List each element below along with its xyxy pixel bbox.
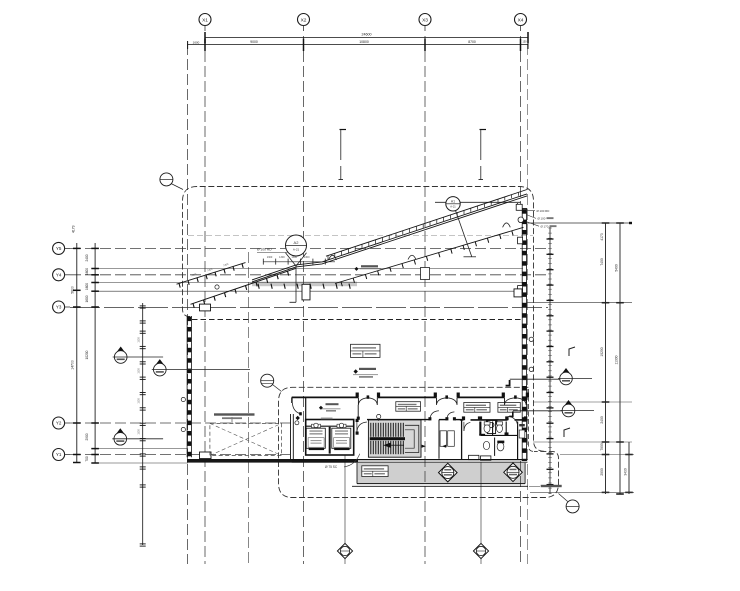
- svg-text:5400: 5400: [615, 264, 619, 272]
- svg-text:10200: 10200: [85, 350, 89, 359]
- svg-text:11300: 11300: [615, 355, 619, 364]
- svg-text:Ø 100: Ø 100: [538, 217, 546, 221]
- svg-text:1500: 1500: [138, 429, 141, 435]
- svg-text:8700: 8700: [468, 40, 476, 44]
- svg-text:1300: 1300: [292, 256, 298, 259]
- svg-text:10800: 10800: [359, 40, 369, 44]
- svg-text:X4: X4: [518, 17, 524, 23]
- svg-text:24600: 24600: [362, 33, 372, 37]
- svg-text:A2: A2: [294, 240, 300, 245]
- svg-text:10200: 10200: [600, 347, 604, 356]
- svg-text:Ø 100 RD: Ø 100 RD: [257, 248, 272, 252]
- svg-text:3430: 3430: [624, 468, 628, 476]
- svg-text:2400: 2400: [600, 416, 604, 424]
- svg-text:A-21: A-21: [450, 205, 456, 209]
- svg-text:Y5: Y5: [56, 246, 62, 251]
- svg-text:1300: 1300: [223, 263, 230, 268]
- svg-text:1300: 1300: [279, 256, 285, 259]
- svg-text:2900: 2900: [85, 433, 89, 440]
- svg-text:1500: 1500: [138, 337, 141, 343]
- svg-text:1300: 1300: [304, 256, 310, 259]
- svg-text:X1: X1: [202, 17, 208, 23]
- svg-text:5600: 5600: [71, 286, 75, 294]
- svg-text:2400: 2400: [85, 254, 89, 261]
- svg-text:X3: X3: [422, 17, 428, 23]
- svg-text:1300: 1300: [267, 256, 273, 259]
- svg-text:9000: 9000: [250, 40, 258, 44]
- svg-text:Y2: Y2: [56, 421, 62, 426]
- svg-text:Y4: Y4: [56, 273, 62, 278]
- svg-text:1500: 1500: [138, 368, 141, 374]
- svg-text:Y1: Y1: [56, 452, 62, 457]
- svg-text:A1: A1: [451, 200, 455, 204]
- svg-text:1600: 1600: [85, 283, 89, 290]
- svg-text:1600: 1600: [193, 41, 200, 45]
- svg-text:1300: 1300: [191, 273, 198, 278]
- svg-text:7900: 7900: [600, 443, 604, 451]
- svg-text:7400: 7400: [600, 258, 604, 266]
- svg-text:1600: 1600: [85, 268, 89, 275]
- svg-text:2900: 2900: [600, 468, 604, 476]
- svg-text:150: 150: [523, 41, 528, 44]
- svg-text:Ø 100 RD: Ø 100 RD: [537, 209, 550, 213]
- svg-text:X2: X2: [301, 17, 307, 23]
- svg-text:14700: 14700: [71, 360, 75, 370]
- svg-text:4173: 4173: [600, 233, 604, 241]
- svg-text:Y3: Y3: [56, 305, 62, 310]
- svg-text:Ø 75 SC: Ø 75 SC: [325, 465, 338, 469]
- svg-text:1500: 1500: [138, 398, 141, 404]
- svg-text:4173: 4173: [72, 225, 76, 233]
- svg-text:1600: 1600: [85, 295, 89, 302]
- svg-text:700: 700: [85, 456, 89, 462]
- svg-text:A-21: A-21: [293, 248, 300, 252]
- svg-text:Ø 170: Ø 170: [541, 225, 549, 229]
